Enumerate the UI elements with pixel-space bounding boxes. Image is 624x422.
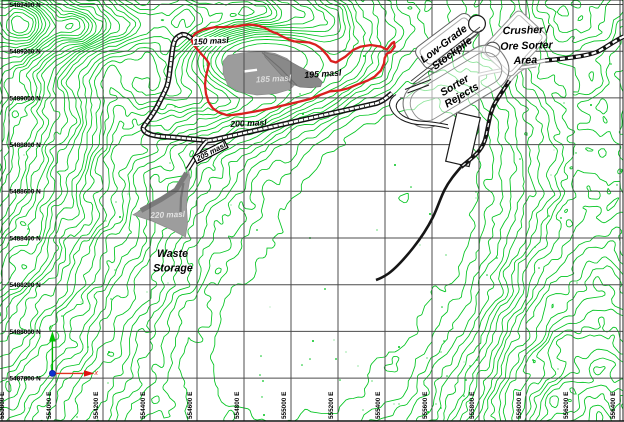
svg-text:555200 E: 555200 E: [328, 391, 335, 419]
svg-text:Ore Sorter: Ore Sorter: [500, 39, 554, 53]
svg-text:5488200 N: 5488200 N: [10, 282, 42, 289]
svg-text:Crusher /: Crusher /: [502, 24, 550, 38]
svg-text:185 masl: 185 masl: [256, 73, 293, 85]
svg-text:5488000 N: 5488000 N: [10, 329, 42, 336]
svg-text:556400 E: 556400 E: [610, 391, 617, 419]
svg-text:5488800 N: 5488800 N: [10, 142, 42, 149]
svg-text:5487800 N: 5487800 N: [10, 376, 42, 383]
svg-text:200 masl: 200 masl: [229, 117, 267, 129]
svg-text:5489200 N: 5489200 N: [10, 49, 42, 56]
svg-text:555000 E: 555000 E: [281, 391, 288, 419]
svg-text:554600 E: 554600 E: [187, 391, 194, 419]
svg-text:554200 E: 554200 E: [93, 391, 100, 419]
svg-text:554800 E: 554800 E: [234, 391, 241, 419]
svg-text:Storage: Storage: [153, 263, 193, 275]
svg-text:555800 E: 555800 E: [469, 391, 476, 419]
svg-text:556200 E: 556200 E: [563, 391, 570, 419]
svg-text:5488600 N: 5488600 N: [10, 189, 42, 196]
svg-text:220 masl: 220 masl: [149, 210, 186, 220]
svg-text:Waste: Waste: [157, 248, 188, 260]
svg-text:Area: Area: [512, 54, 537, 67]
svg-text:554400 E: 554400 E: [140, 391, 147, 419]
svg-text:553800 E: 553800 E: [0, 391, 6, 419]
svg-text:555600 E: 555600 E: [422, 391, 429, 419]
svg-text:556000 E: 556000 E: [516, 391, 523, 419]
svg-text:5488400 N: 5488400 N: [10, 235, 42, 242]
svg-text:x: x: [94, 370, 99, 377]
svg-text:5489400 N: 5489400 N: [10, 2, 42, 9]
svg-text:150 masl: 150 masl: [193, 35, 230, 47]
svg-text:5489000 N: 5489000 N: [10, 95, 42, 102]
svg-text:555400 E: 555400 E: [375, 391, 382, 419]
svg-text:554000 E: 554000 E: [46, 391, 53, 419]
